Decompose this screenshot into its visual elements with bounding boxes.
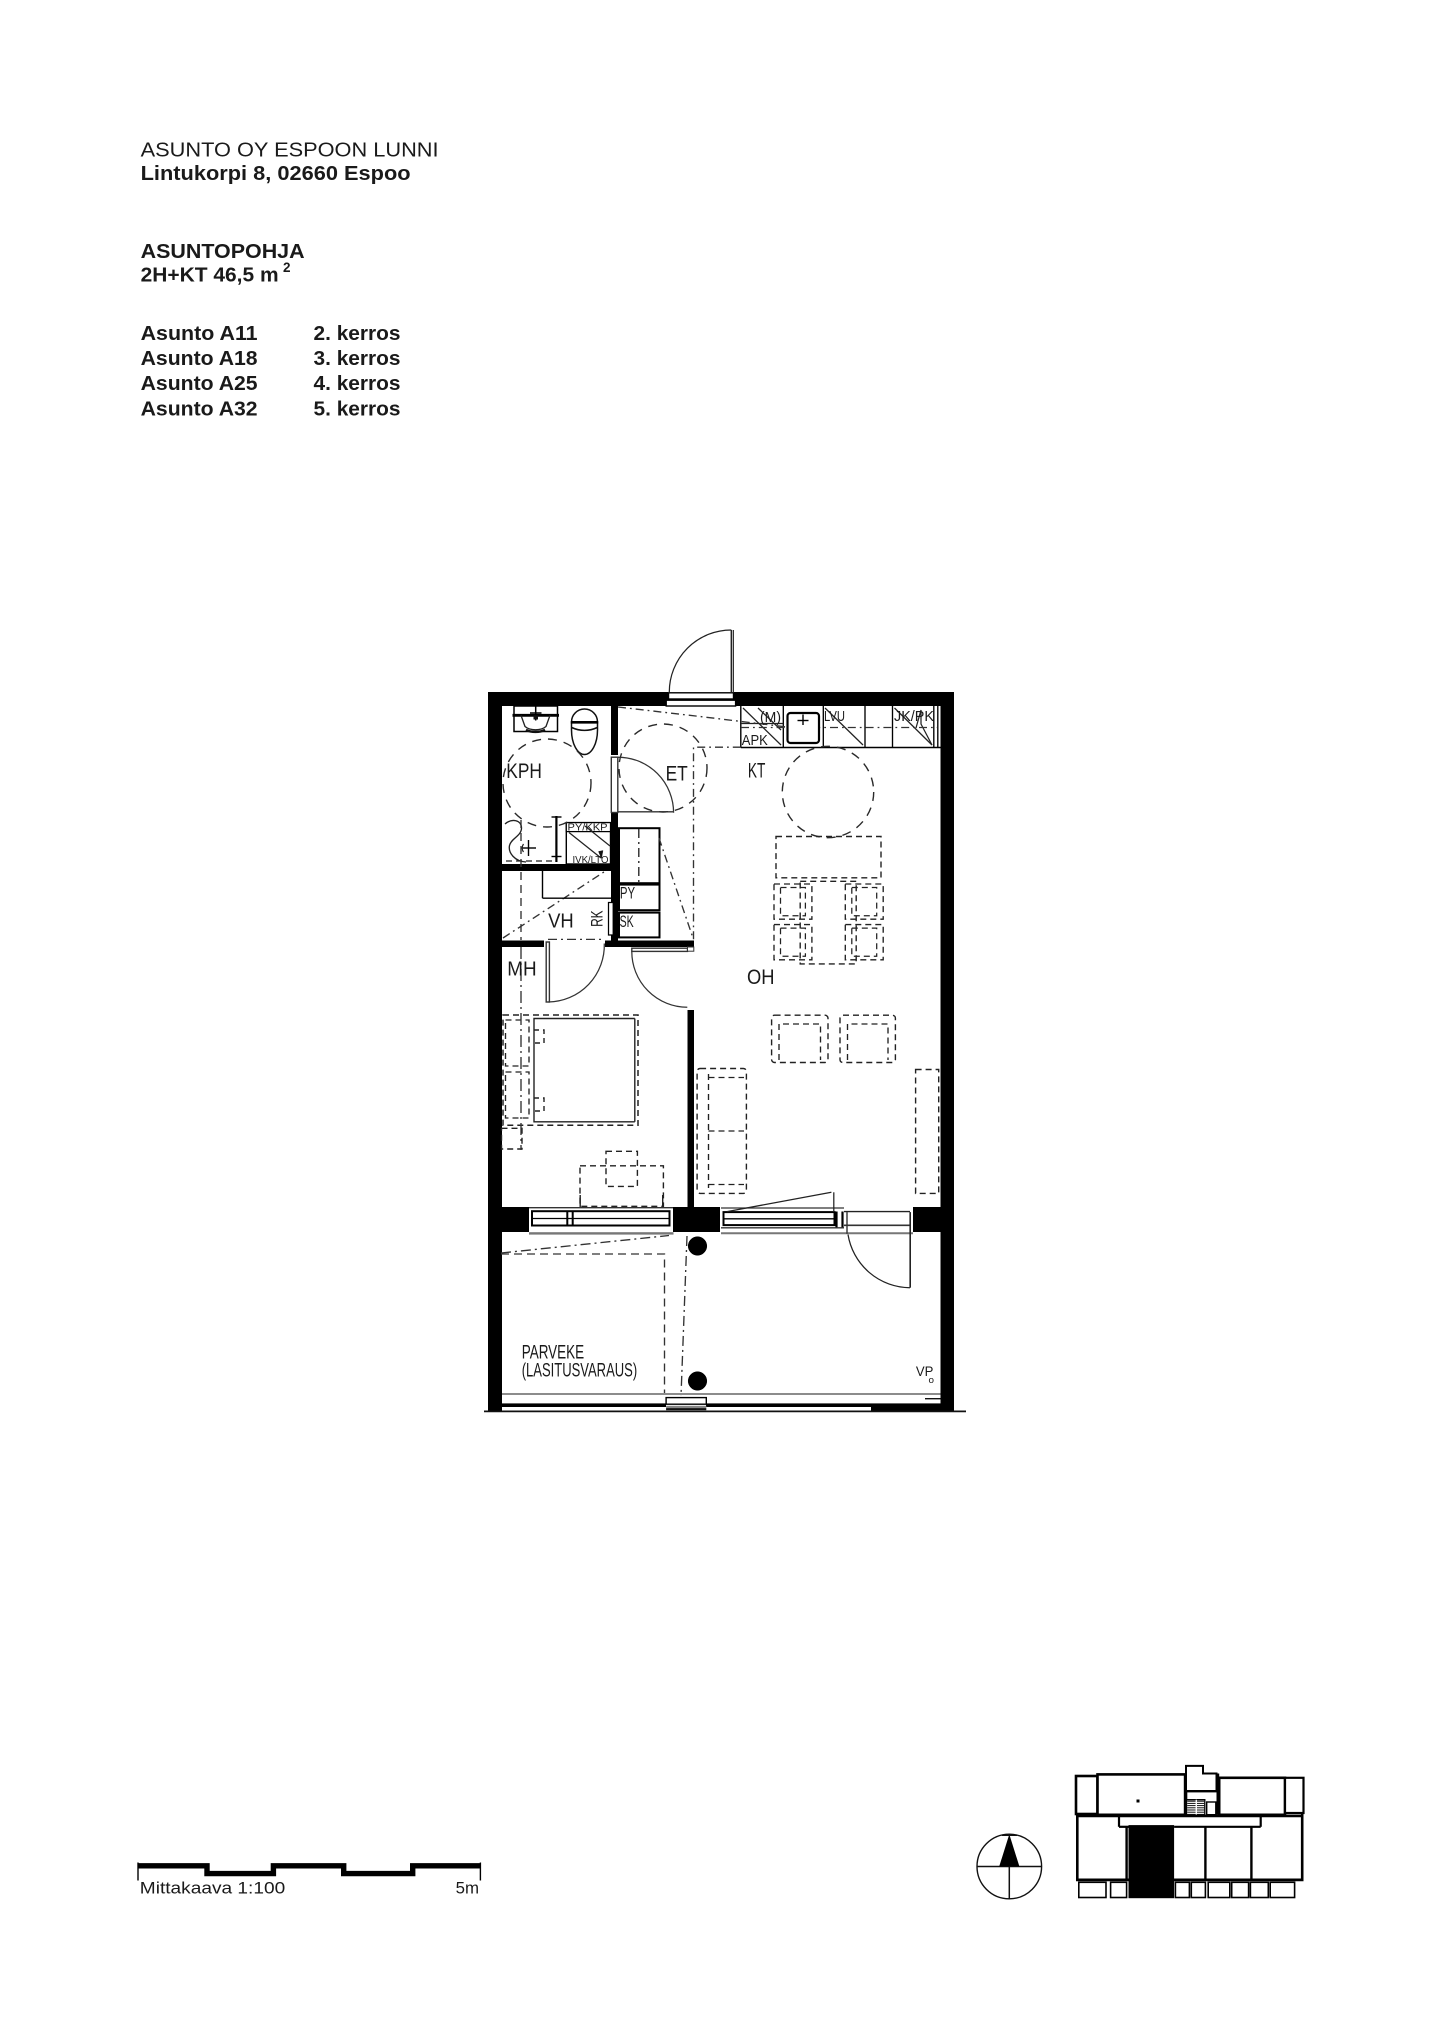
- svg-text:PY/KKP: PY/KKP: [568, 822, 608, 834]
- svg-text:Mittakaava 1:100: Mittakaava 1:100: [140, 1879, 285, 1897]
- svg-text:KT: KT: [748, 759, 766, 782]
- svg-text:JK/PK: JK/PK: [894, 708, 934, 725]
- svg-text:2: 2: [283, 260, 291, 275]
- svg-text:Asunto A18: Asunto A18: [141, 347, 258, 370]
- svg-text:o: o: [929, 1375, 935, 1386]
- svg-text:Lintukorpi 8, 02660 Espoo: Lintukorpi 8, 02660 Espoo: [141, 162, 411, 185]
- svg-text:APK: APK: [742, 732, 768, 749]
- svg-text:LVU: LVU: [824, 708, 845, 725]
- svg-text:2H+KT 46,5 m: 2H+KT 46,5 m: [141, 264, 279, 287]
- svg-text:4. kerros: 4. kerros: [314, 372, 401, 395]
- svg-text:KPH: KPH: [506, 760, 542, 783]
- svg-text:MH: MH: [507, 958, 536, 981]
- svg-text:RK: RK: [588, 910, 607, 927]
- svg-text:Asunto A11: Asunto A11: [141, 322, 258, 345]
- svg-text:ASUNTOPOHJA: ASUNTOPOHJA: [141, 240, 305, 263]
- svg-text:3. kerros: 3. kerros: [314, 347, 401, 370]
- svg-text:SK: SK: [620, 912, 635, 931]
- svg-text:2. kerros: 2. kerros: [314, 322, 401, 345]
- svg-text:OH: OH: [747, 966, 775, 989]
- svg-text:IVK/LTO: IVK/LTO: [573, 854, 609, 866]
- svg-text:Asunto A25: Asunto A25: [141, 372, 258, 395]
- svg-text:(LASITUSVARAUS): (LASITUSVARAUS): [522, 1361, 638, 1382]
- svg-text:ASUNTO OY ESPOON LUNNI: ASUNTO OY ESPOON LUNNI: [141, 139, 439, 162]
- svg-text:(M): (M): [760, 709, 781, 726]
- svg-text:VH: VH: [548, 909, 574, 932]
- svg-text:ET: ET: [666, 762, 688, 785]
- svg-text:5. kerros: 5. kerros: [314, 397, 401, 420]
- svg-text:PY: PY: [620, 884, 635, 903]
- svg-text:Asunto A32: Asunto A32: [141, 397, 258, 420]
- svg-text:5m: 5m: [456, 1879, 479, 1897]
